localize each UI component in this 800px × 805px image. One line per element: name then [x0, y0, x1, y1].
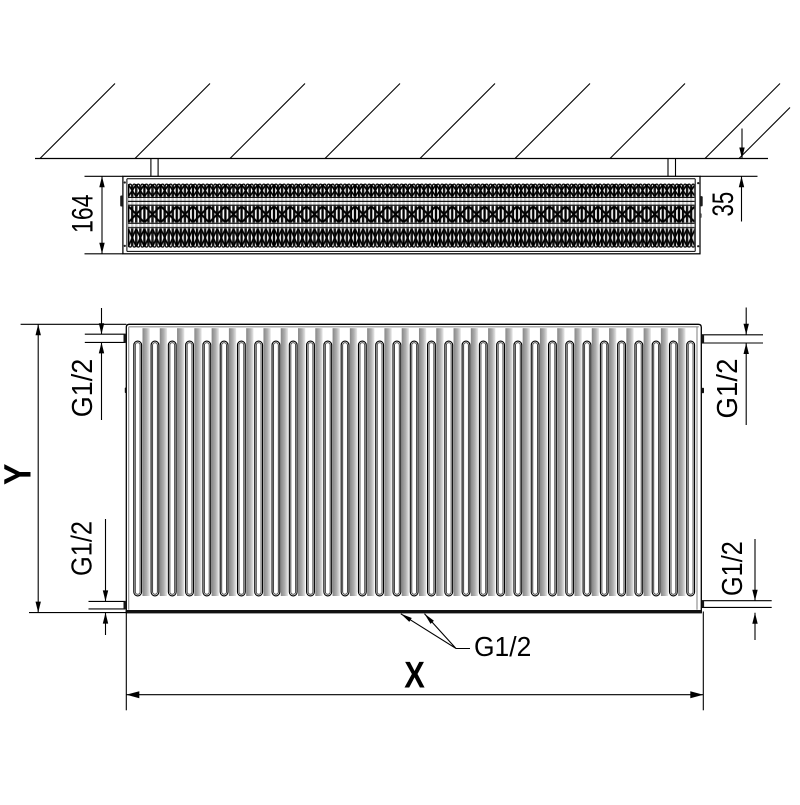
svg-text:164: 164 — [66, 194, 99, 233]
svg-text:G1/2: G1/2 — [712, 359, 744, 419]
svg-text:35: 35 — [707, 192, 740, 217]
svg-text:G1/2: G1/2 — [474, 631, 531, 662]
svg-text:G1/2: G1/2 — [67, 521, 99, 576]
svg-text:G1/2: G1/2 — [717, 541, 749, 596]
svg-text:G1/2: G1/2 — [67, 359, 99, 418]
svg-text:Y: Y — [0, 464, 39, 485]
svg-text:X: X — [404, 654, 425, 695]
